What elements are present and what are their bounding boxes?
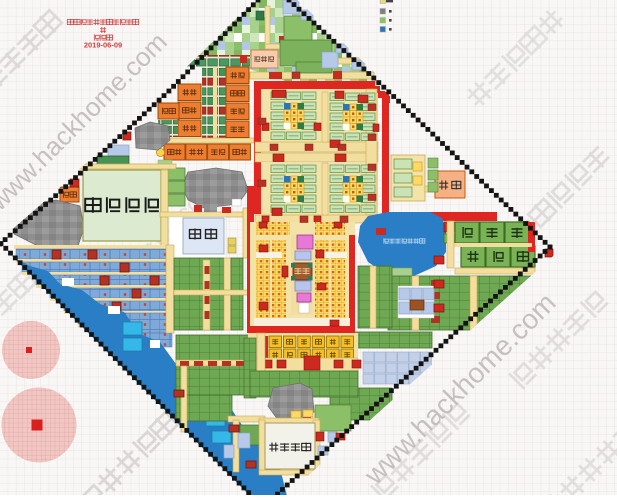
svg-text:2019-06-09: 2019-06-09: [84, 41, 122, 50]
